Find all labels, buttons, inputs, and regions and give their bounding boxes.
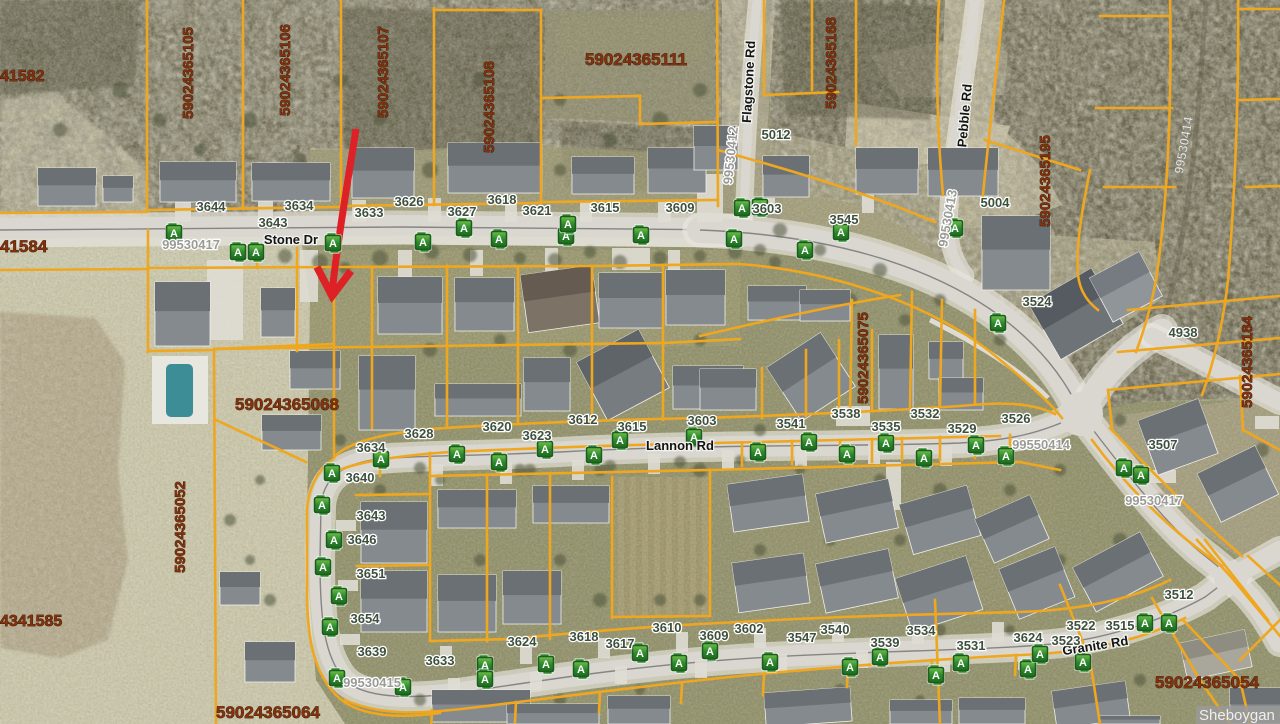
- svg-text:99530415: 99530415: [343, 675, 401, 690]
- svg-text:3640: 3640: [346, 470, 375, 485]
- svg-text:A: A: [616, 435, 624, 447]
- svg-text:A: A: [330, 535, 338, 547]
- svg-text:3618: 3618: [488, 192, 517, 207]
- svg-text:A: A: [1137, 470, 1145, 482]
- svg-text:A: A: [495, 234, 503, 246]
- svg-text:59024365184: 59024365184: [1239, 315, 1256, 407]
- svg-text:3615: 3615: [618, 419, 647, 434]
- svg-text:99550414: 99550414: [1012, 437, 1071, 452]
- svg-text:59024365068: 59024365068: [235, 395, 339, 414]
- svg-text:A: A: [319, 562, 327, 574]
- svg-text:3609: 3609: [666, 200, 695, 215]
- svg-text:A: A: [801, 245, 809, 257]
- svg-text:A: A: [590, 450, 598, 462]
- svg-text:3539: 3539: [871, 635, 900, 650]
- svg-text:59024365052: 59024365052: [172, 481, 189, 573]
- svg-text:A: A: [329, 238, 337, 250]
- svg-text:3646: 3646: [348, 532, 377, 547]
- svg-text:3643: 3643: [259, 215, 288, 230]
- svg-text:3633: 3633: [426, 653, 455, 668]
- svg-text:3545: 3545: [830, 212, 859, 227]
- svg-text:A: A: [843, 449, 851, 461]
- svg-text:A: A: [636, 648, 644, 660]
- svg-text:3628: 3628: [405, 426, 434, 441]
- svg-text:A: A: [675, 658, 683, 670]
- svg-text:3634: 3634: [285, 198, 315, 213]
- svg-text:3602: 3602: [735, 621, 764, 636]
- svg-text:A: A: [419, 237, 427, 249]
- svg-text:3624: 3624: [1014, 630, 1044, 645]
- svg-text:3634: 3634: [357, 440, 387, 455]
- svg-text:59024365107: 59024365107: [375, 26, 392, 118]
- svg-text:3532: 3532: [911, 406, 940, 421]
- svg-text:3529: 3529: [948, 421, 977, 436]
- svg-text:59024365168: 59024365168: [823, 17, 840, 109]
- svg-text:A: A: [453, 449, 461, 461]
- svg-text:3538: 3538: [832, 406, 861, 421]
- svg-text:3512: 3512: [1165, 587, 1194, 602]
- svg-text:A: A: [1079, 657, 1087, 669]
- svg-text:3612: 3612: [569, 412, 598, 427]
- svg-text:3534: 3534: [907, 623, 937, 638]
- svg-text:59024365075: 59024365075: [855, 312, 872, 404]
- svg-text:3531: 3531: [957, 638, 986, 653]
- svg-text:59024365195: 59024365195: [1037, 135, 1054, 227]
- svg-text:3623: 3623: [523, 428, 552, 443]
- svg-text:A: A: [328, 468, 336, 480]
- svg-text:59024365105: 59024365105: [180, 27, 197, 119]
- svg-text:A: A: [481, 674, 489, 686]
- svg-text:A: A: [1120, 463, 1128, 475]
- svg-text:A: A: [335, 591, 343, 603]
- svg-text:A: A: [766, 657, 774, 669]
- svg-text:A: A: [542, 659, 550, 671]
- svg-text:3526: 3526: [1002, 411, 1031, 426]
- svg-text:3651: 3651: [357, 566, 386, 581]
- svg-text:3621: 3621: [523, 203, 552, 218]
- svg-text:41582: 41582: [0, 68, 45, 85]
- svg-text:3644: 3644: [197, 199, 227, 214]
- svg-text:A: A: [1141, 618, 1149, 630]
- svg-text:5004: 5004: [981, 195, 1011, 210]
- svg-text:3626: 3626: [395, 194, 424, 209]
- svg-text:3624: 3624: [508, 634, 538, 649]
- svg-text:A: A: [876, 652, 884, 664]
- svg-text:3615: 3615: [591, 200, 620, 215]
- svg-text:A: A: [805, 437, 813, 449]
- svg-text:A: A: [706, 646, 714, 658]
- svg-text:A: A: [837, 227, 845, 239]
- svg-text:4938: 4938: [1169, 325, 1198, 340]
- svg-text:3654: 3654: [351, 611, 381, 626]
- svg-text:A: A: [882, 438, 890, 450]
- svg-text:A: A: [754, 447, 762, 459]
- svg-text:A: A: [846, 662, 854, 674]
- svg-text:3618: 3618: [570, 629, 599, 644]
- svg-text:A: A: [994, 318, 1002, 330]
- svg-text:59024365054: 59024365054: [1155, 673, 1260, 692]
- svg-text:3524: 3524: [1023, 294, 1053, 309]
- svg-text:A: A: [1036, 649, 1044, 661]
- svg-text:A: A: [234, 247, 242, 259]
- svg-text:3627: 3627: [448, 204, 477, 219]
- svg-text:4341585: 4341585: [0, 613, 62, 630]
- svg-text:A: A: [637, 230, 645, 242]
- svg-text:A: A: [730, 234, 738, 246]
- svg-text:3522: 3522: [1067, 618, 1096, 633]
- svg-text:A: A: [932, 670, 940, 682]
- svg-text:A: A: [920, 453, 928, 465]
- svg-text:3643: 3643: [357, 508, 386, 523]
- svg-text:A: A: [577, 664, 585, 676]
- svg-text:99530417: 99530417: [162, 237, 220, 252]
- svg-text:59024365111: 59024365111: [585, 50, 687, 69]
- svg-text:3541: 3541: [777, 416, 806, 431]
- svg-text:3603: 3603: [688, 413, 717, 428]
- svg-text:3547: 3547: [788, 630, 817, 645]
- svg-text:59024365108: 59024365108: [481, 61, 498, 153]
- svg-text:3617: 3617: [606, 636, 635, 651]
- svg-text:41584: 41584: [0, 237, 48, 256]
- svg-text:A: A: [564, 219, 572, 231]
- svg-text:A: A: [541, 444, 549, 456]
- svg-text:3610: 3610: [653, 620, 682, 635]
- svg-text:99530417: 99530417: [1125, 493, 1183, 508]
- svg-text:A: A: [495, 457, 503, 469]
- svg-text:A: A: [738, 203, 746, 215]
- svg-text:A: A: [377, 454, 385, 466]
- svg-text:A: A: [333, 673, 341, 685]
- svg-text:A: A: [460, 223, 468, 235]
- svg-text:A: A: [972, 440, 980, 452]
- svg-text:59024365064: 59024365064: [216, 703, 321, 722]
- svg-text:A: A: [1024, 664, 1032, 676]
- svg-text:A: A: [326, 622, 334, 634]
- svg-text:3523: 3523: [1052, 633, 1081, 648]
- svg-text:Lannon Rd: Lannon Rd: [646, 438, 714, 453]
- svg-text:3540: 3540: [821, 622, 850, 637]
- svg-text:3535: 3535: [872, 419, 901, 434]
- svg-text:59024365106: 59024365106: [277, 24, 294, 116]
- svg-text:5012: 5012: [762, 127, 791, 142]
- svg-text:3633: 3633: [355, 205, 384, 220]
- svg-text:Stone Dr: Stone Dr: [264, 232, 318, 247]
- svg-text:3603: 3603: [753, 201, 782, 216]
- svg-text:Sheboygan C: Sheboygan C: [1199, 707, 1280, 724]
- svg-text:3507: 3507: [1149, 437, 1178, 452]
- svg-text:A: A: [1002, 451, 1010, 463]
- svg-text:A: A: [957, 658, 965, 670]
- svg-text:3609: 3609: [700, 628, 729, 643]
- svg-text:3515: 3515: [1106, 618, 1135, 633]
- svg-text:3639: 3639: [358, 644, 387, 659]
- svg-text:A: A: [318, 500, 326, 512]
- svg-text:A: A: [1165, 618, 1173, 630]
- svg-text:3620: 3620: [483, 419, 512, 434]
- svg-text:A: A: [252, 247, 260, 259]
